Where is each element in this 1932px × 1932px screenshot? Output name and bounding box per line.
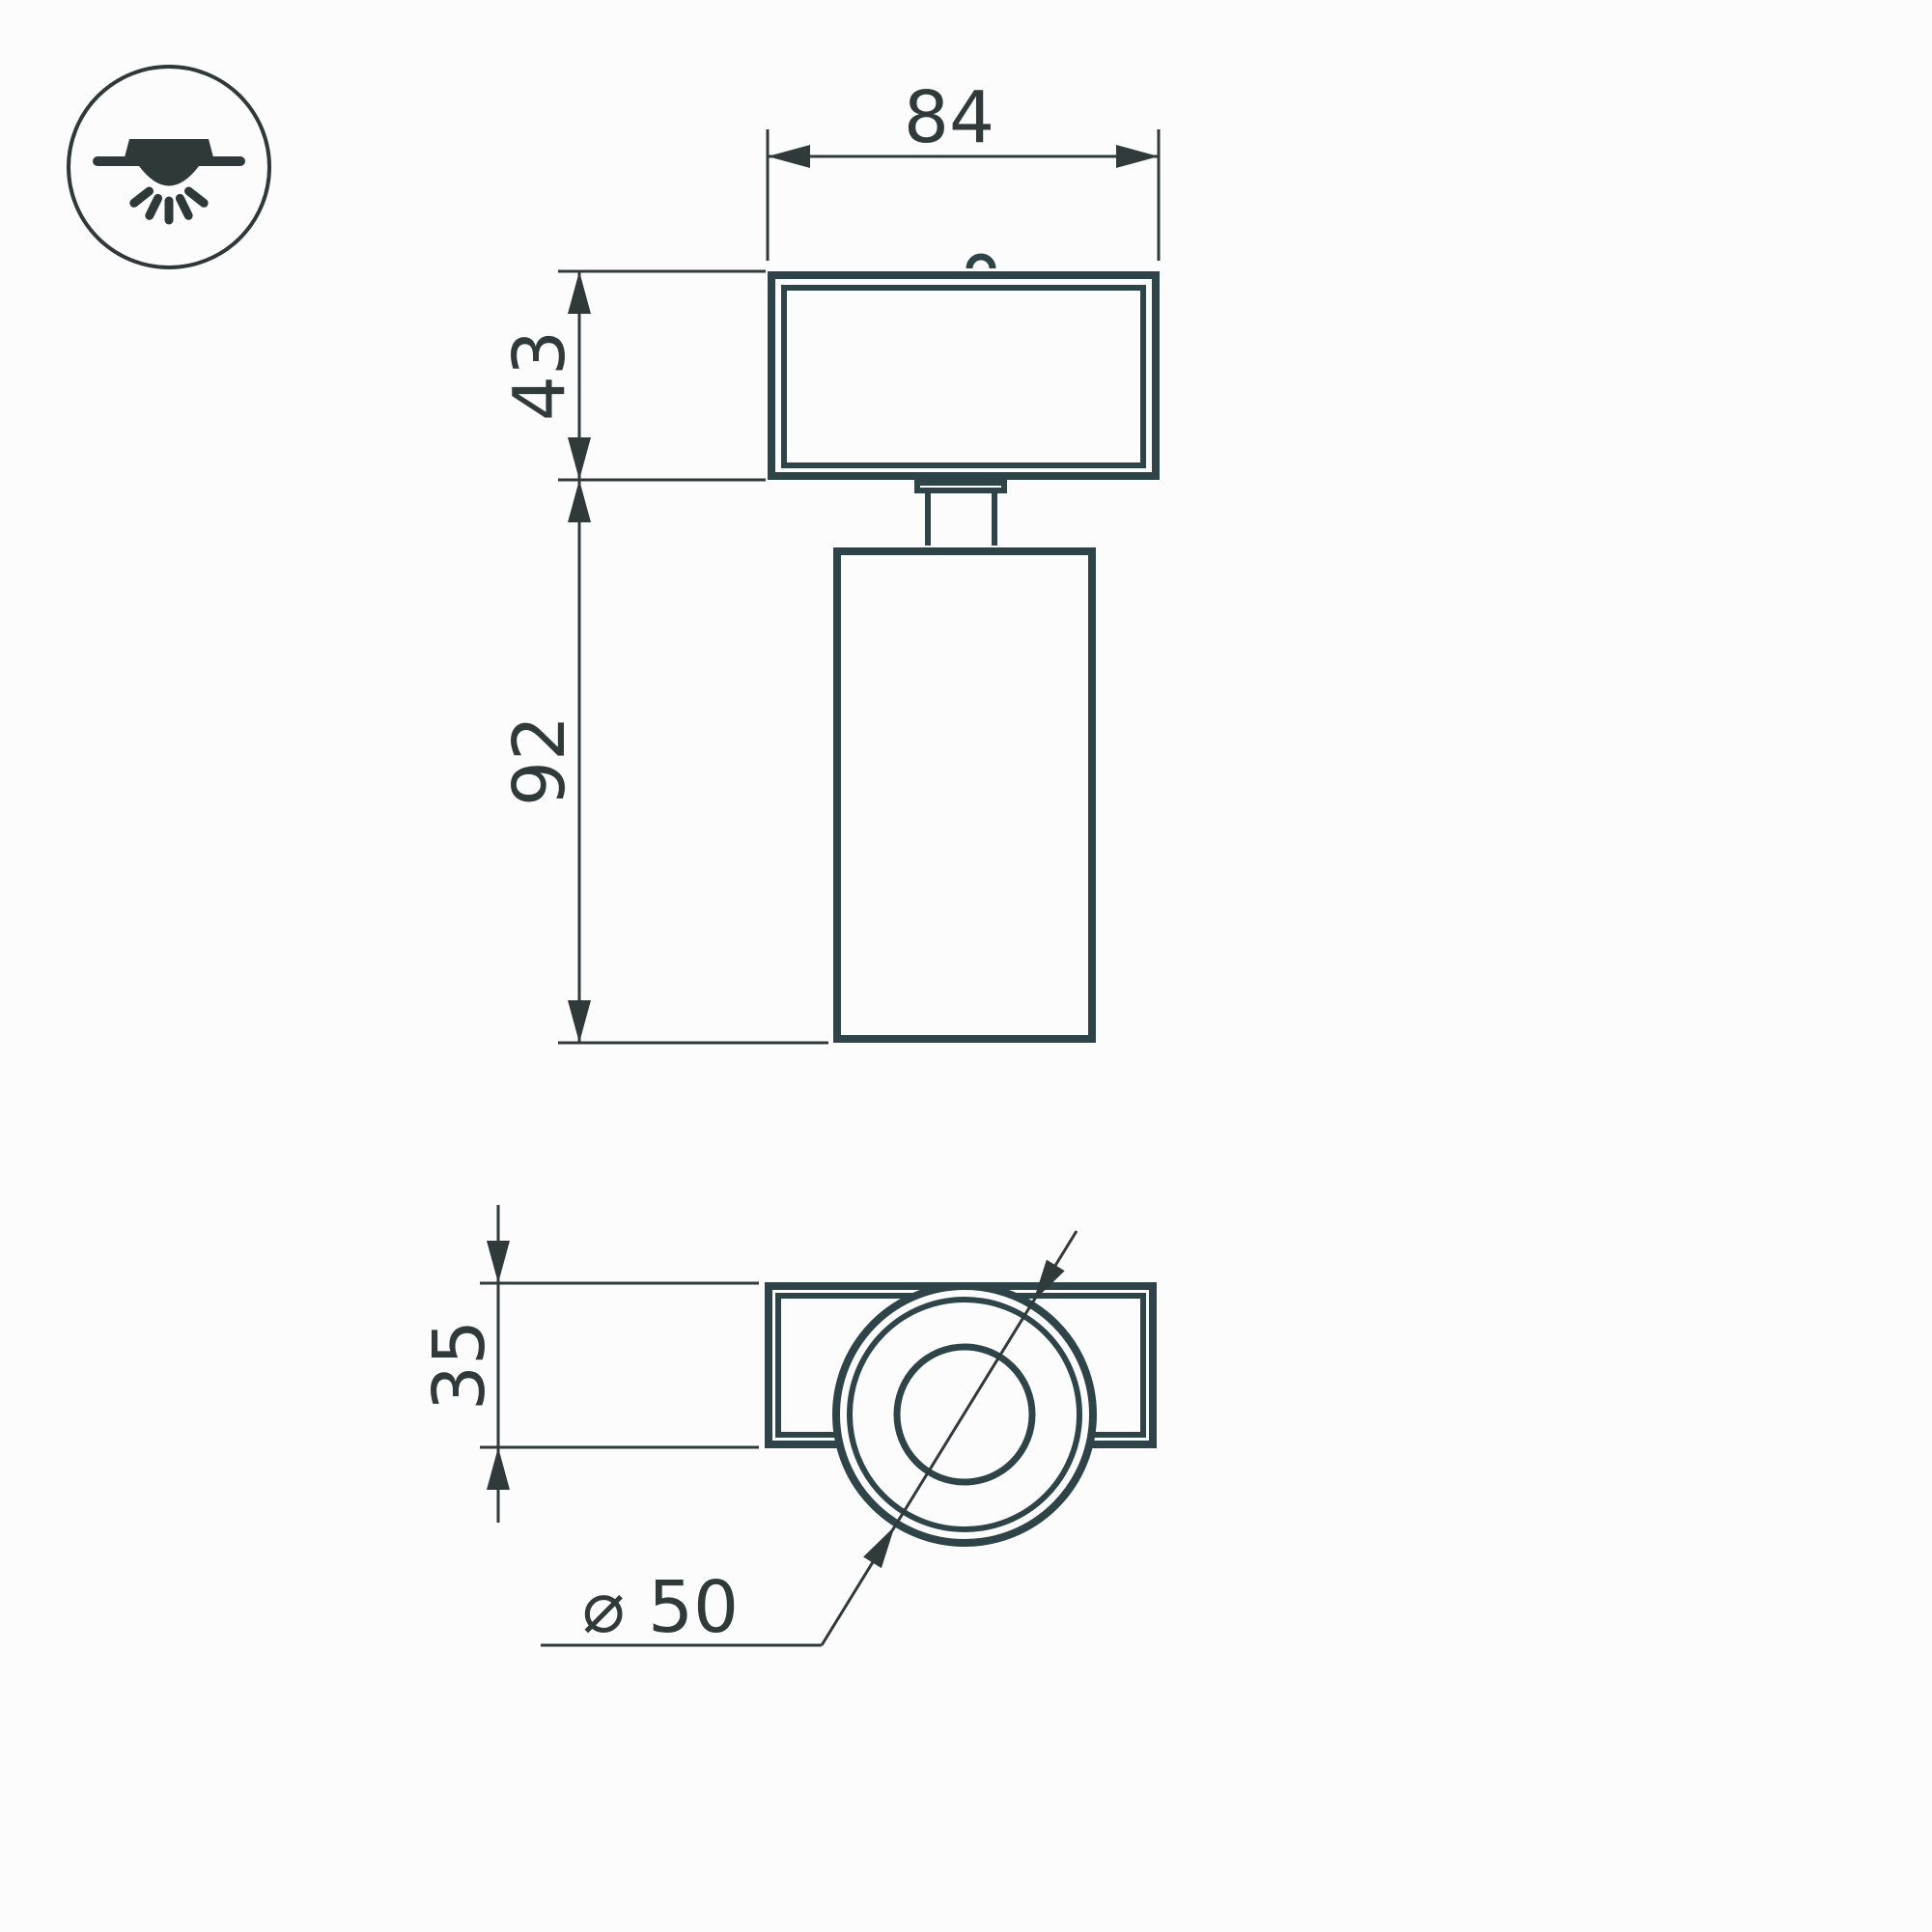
arrowhead-lower	[863, 1526, 895, 1568]
head-outer-outline	[771, 275, 1156, 476]
drawing-canvas: 84 43 92	[0, 0, 1932, 1932]
arrowhead-down	[568, 437, 591, 480]
icon-light-rays	[134, 191, 204, 220]
fixture-head	[771, 257, 1156, 546]
arrowhead-left	[768, 145, 810, 168]
arrowhead-up	[568, 271, 591, 314]
icon-fixture-body	[125, 139, 213, 157]
dim-depth: 35	[418, 1205, 759, 1523]
arrowhead-up	[568, 480, 591, 522]
dim-body-height: 92	[498, 480, 828, 1043]
arrowhead-down	[487, 1241, 510, 1283]
dim-depth-label: 35	[418, 1320, 501, 1411]
dim-head-height: 43	[498, 271, 766, 480]
dim-body-height-label: 92	[498, 715, 581, 806]
hanging-loop	[969, 257, 993, 268]
arrowhead-right	[1116, 145, 1159, 168]
mount-type-icon	[69, 67, 269, 267]
front-view: 84 43 92	[498, 76, 1159, 1043]
lamp-cylinder	[837, 551, 1092, 1039]
icon-lamp-dome	[139, 166, 199, 186]
dim-head-height-label: 43	[498, 330, 581, 421]
technical-drawing: 84 43 92	[0, 0, 1932, 1932]
dim-diameter-label: ⌀ 50	[582, 1566, 739, 1649]
bottom-view: 35 ⌀ 50	[418, 1205, 1153, 1649]
joint-flange	[917, 483, 1004, 490]
dim-width-label: 84	[904, 76, 994, 159]
arrowhead-up	[487, 1447, 510, 1490]
arrowhead-down	[568, 1000, 591, 1043]
dim-width: 84	[768, 76, 1159, 261]
